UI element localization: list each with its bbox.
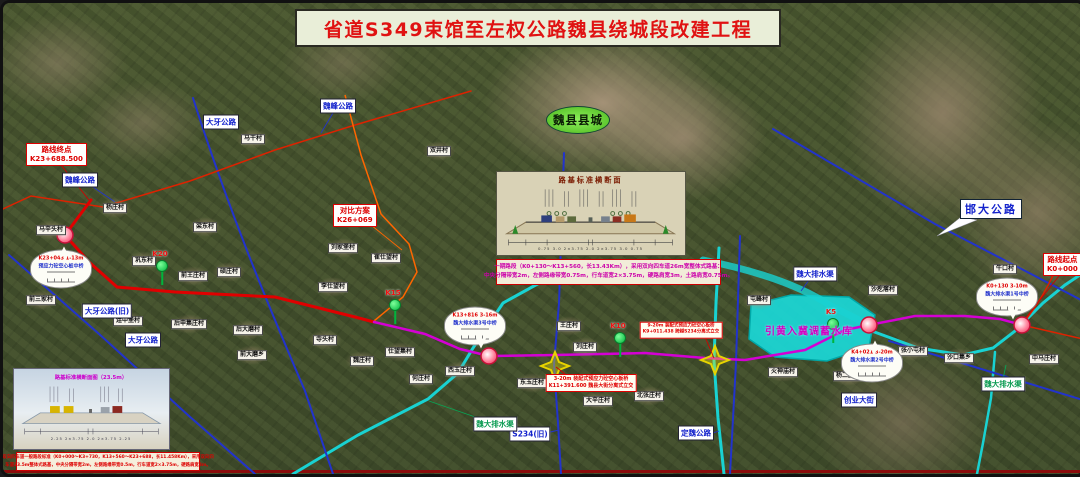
village-label: 火神庙村 (768, 367, 798, 377)
village-label: 魏庄村 (350, 356, 374, 366)
km-marker-dot (156, 260, 168, 272)
interchange-location: K9+011.438 跨越S234分离式立交 (643, 330, 720, 336)
road-label: 魏大排水渠 (793, 267, 837, 282)
bridge-name: 预应力砼空心板中桥 (38, 263, 83, 270)
village-label: 前王庄村 (178, 271, 208, 281)
route-start-label: 路线起点K0+000 (1043, 253, 1080, 276)
county-town-text: 魏县县城 (553, 112, 603, 128)
interchange-bridge-type: 3-20m 装配式预应力砼空心板桥 (554, 376, 628, 382)
bridge-callout: K4+021 3-20m魏大排水渠2号中桥 (841, 344, 903, 383)
vehicles (541, 214, 636, 222)
village-label: 屯峰村 (747, 295, 771, 305)
village-label: 中马庄村 (1029, 354, 1059, 364)
village-label: 沙疙瘩村 (868, 285, 898, 295)
road-label: 大牙公路 (203, 115, 239, 130)
route-start-chainage: K0+000 (1047, 265, 1078, 274)
dimension-line (509, 240, 673, 246)
road-label: 魏峰公路 (320, 99, 356, 114)
route-alt-title: 对比方案 (337, 206, 373, 216)
km-marker-label: K20 (152, 250, 167, 258)
road-label: 魏大排水渠 (473, 417, 517, 432)
bridge-callout: K0+130 3-10m魏大排水渠1号中桥 (976, 278, 1038, 317)
village-label: 双井村 (427, 146, 451, 156)
route-alt-chainage: K26+069 (337, 216, 373, 225)
bridge-name: 魏大排水渠1号中桥 (985, 291, 1028, 298)
interchange-bridge-type: 9-20m 装配式预应力砼空心板桥 (647, 324, 714, 329)
bridge-chainage: K0+130 3-10m (986, 284, 1027, 290)
median-strip (589, 217, 593, 222)
dimension-line-2 (25, 429, 159, 435)
km-stem (619, 342, 621, 357)
km-marker-dot (614, 332, 626, 344)
interchange-label-1: 3-20m 装配式预应力砼空心板桥K11+391.600 魏县大街分离式立交 (546, 374, 637, 392)
village-label: 牛口村 (993, 264, 1017, 274)
bridge-sketch (47, 272, 75, 283)
spec-line-2: 中央分隔带宽2m，左侧路缘带宽0.75m，行车道宽2×3.75m，硬路肩宽3m，… (484, 272, 733, 282)
km-marker-label: K5 (826, 308, 836, 316)
village-label: 东玉庄村 (517, 378, 547, 388)
village-label: 李仕望村 (318, 282, 348, 292)
village-label: 沙口集乡 (944, 353, 974, 363)
cross-section-panel-23m: 路基标准横断面图（23.5m） 2.25 2×3.75 2.0 2×3.75 2… (13, 368, 170, 450)
village-label: 马干村 (241, 134, 265, 144)
village-label: 刘家堡村 (328, 243, 358, 253)
bridge-chainage: K23+043 1-13m (39, 256, 84, 262)
road-label: 定魏公路 (678, 426, 714, 441)
village-label: 前大磨乡 (237, 350, 267, 360)
village-label: 后大磨村 (233, 325, 263, 335)
county-town-label: 魏县县城 (546, 106, 610, 134)
cross-section-sketch-26m: 路基标准横断面 (497, 172, 684, 254)
route-alt-label: 对比方案K26+069 (333, 204, 377, 227)
bridge-chainage: K13+816 3-16m (453, 313, 498, 319)
road-label: 创业大街 (841, 393, 877, 408)
village-label: 马辛头村 (36, 225, 66, 235)
cross-section-sketch-23m: 路基标准横断面图（23.5m） 2.25 2×3.75 2.0 2×3.75 2… (14, 369, 169, 449)
village-label: 寺头村 (313, 335, 337, 345)
bridge-sketch (993, 300, 1021, 311)
bridge-sketch (858, 366, 886, 377)
spec2-line-1: 双向四车道一般路段标准（K0+000～K3+730，K13+560～K23+68… (2, 454, 213, 461)
bridge-name: 魏大排水渠3号中桥 (453, 320, 496, 327)
route-end-title: 路线终点 (30, 145, 83, 155)
village-label: 后申集庄村 (171, 319, 207, 329)
bridge-callout: K23+043 1-13m预应力砼空心板中桥 (30, 250, 92, 289)
roadbed-spec-note: 一期路段（K0+130～K13+560，长13.43Km），采用双向四车道26m… (496, 259, 721, 285)
vehicles-2 (50, 406, 122, 413)
village-label: 前三家村 (26, 295, 56, 305)
route-start-title: 路线起点 (1047, 255, 1078, 265)
interchange-label-2: 9-20m 装配式预应力砼空心板桥K9+011.438 跨越S234分离式立交 (640, 322, 723, 339)
village-label: 王庄村 (557, 321, 581, 331)
village-label: 刘庄村 (573, 342, 597, 352)
village-label: 何庄村 (409, 374, 433, 384)
road-label: 魏大排水渠 (981, 377, 1025, 392)
map-title: 省道S349束馆至左权公路魏县绕城段改建工程 (324, 15, 752, 42)
general-section-spec-note: 双向四车道一般路段标准（K0+000～K3+730，K13+560～K23+68… (16, 452, 200, 471)
dimension-text-columns-2 (50, 387, 122, 403)
spec2-line-2: 车道23.5m整体式路基，中央分隔带宽2m，左侧路缘带宽0.5m，行车道宽2×3… (5, 462, 211, 469)
dimension-text-columns (545, 189, 636, 206)
dimension-values: 0.75 3.0 2×3.75 2.0 2×3.75 3.0 0.75 (538, 246, 643, 251)
km-marker-label: K15 (385, 289, 400, 297)
km-marker-dot (389, 299, 401, 311)
cross-section-panel-26m: 路基标准横断面 (496, 171, 686, 256)
road-label: 大牙公路 (125, 333, 161, 348)
village-label: 崔仕望村 (371, 253, 401, 263)
village-label: 硕庄村 (217, 267, 241, 277)
embankment (507, 222, 675, 234)
embankment-2 (23, 413, 161, 424)
dimension-values-2: 2.25 2×3.75 2.0 2×3.75 2.25 (51, 437, 132, 441)
village-label: 梁东村 (193, 222, 217, 232)
tree-symbols (547, 212, 630, 216)
cross-section-title-2: 路基标准横断面图（23.5m） (55, 373, 127, 381)
spec-line-1: 一期路段（K0+130～K13+560，长13.43Km），采用双向四车道26m… (494, 263, 723, 273)
route-end-label: 路线终点K23+688.500 (26, 143, 87, 166)
village-label: 北张庄村 (634, 391, 664, 401)
km-stem (394, 309, 396, 324)
bridge-callout: K13+816 3-16m魏大排水渠3号中桥 (444, 307, 506, 346)
cross-section-title: 路基标准横断面 (558, 176, 622, 185)
road-label: 大牙公路(旧) (82, 304, 132, 319)
bridge-chainage: K4+021 3-20m (851, 350, 892, 356)
reservoir-label: 引黄入冀调蓄水库 (765, 323, 853, 338)
bridge-name: 魏大排水渠2号中桥 (850, 357, 893, 364)
km-stem (161, 270, 163, 285)
village-label: 西玉庄村 (445, 366, 475, 376)
median-strip-2 (89, 409, 92, 413)
route-end-chainage: K23+688.500 (30, 155, 83, 164)
km-marker-label: K10 (610, 322, 625, 330)
map-title-banner: 省道S349束馆至左权公路魏县绕城段改建工程 (295, 9, 781, 47)
bridge-sketch (461, 329, 489, 340)
village-label: 杨庄村 (103, 203, 127, 213)
road-label: 邯大公路 (960, 199, 1022, 219)
road-label: 魏峰公路 (62, 173, 98, 188)
project-map: 马干村双井村杨庄村马辛头村巩东村梁东村前王庄村硕庄村前三家村连中堡村后申集庄村刘… (0, 0, 1080, 477)
village-label: 张小屯村 (898, 346, 928, 356)
village-label: 仕望集村 (385, 347, 415, 357)
interchange-location: K11+391.600 魏县大街分离式立交 (549, 383, 634, 390)
village-label: 大辛庄村 (583, 396, 613, 406)
